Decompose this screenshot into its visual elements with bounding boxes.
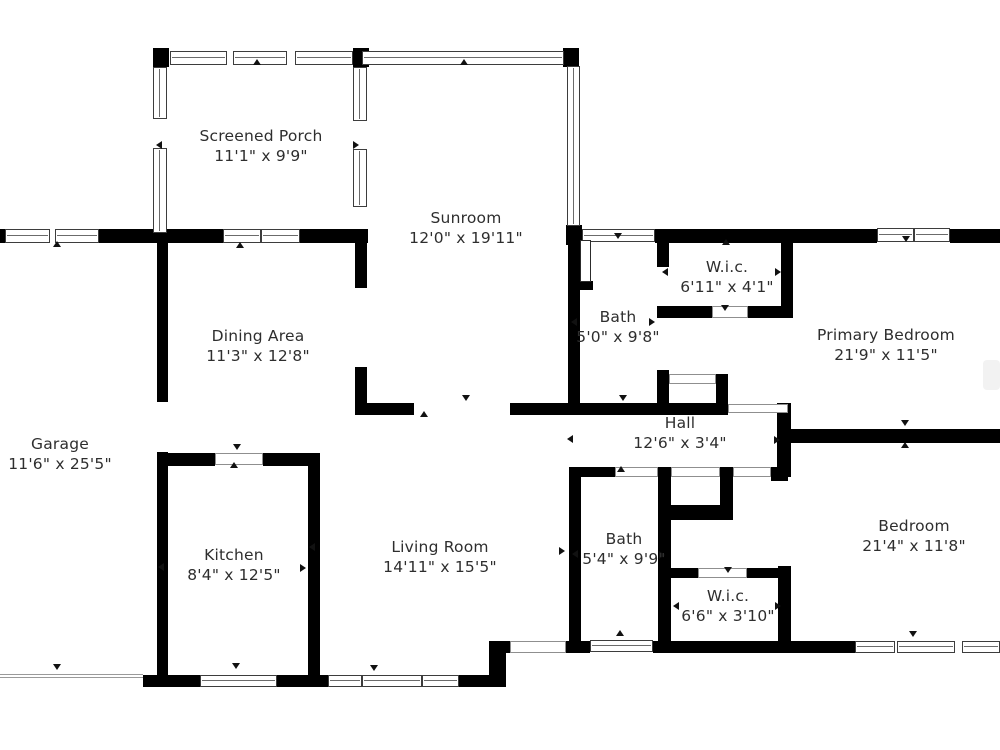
dimension-marker: [300, 564, 306, 572]
dimension-marker: [232, 663, 240, 669]
window-pane-line: [159, 150, 160, 231]
window-pane-line: [172, 57, 225, 58]
window-symbol: [328, 675, 362, 687]
wall-segment: [157, 240, 168, 402]
dimension-marker: [774, 436, 780, 444]
floor-plan: Screened Porch 11'1" x 9'9" Sunroom 12'0…: [0, 0, 1000, 750]
window-pane-line: [364, 57, 562, 58]
window-pane-line: [857, 646, 893, 647]
wall-segment: [143, 675, 200, 687]
room-dims: 12'0" x 19'11": [409, 228, 523, 248]
room-name: Primary Bedroom: [817, 325, 955, 345]
room-dims: 5'0" x 9'8": [576, 327, 659, 347]
window-symbol: [362, 675, 422, 687]
dimension-marker: [901, 442, 909, 448]
dimension-marker: [370, 665, 378, 671]
window-symbol: [200, 675, 277, 687]
window-pane-line: [297, 57, 351, 58]
window-symbol: [153, 67, 167, 119]
room-dims: 5'4" x 9'9": [582, 549, 665, 569]
room-dims: 6'6" x 3'10": [681, 606, 775, 626]
dimension-marker: [775, 602, 781, 610]
door-opening: [712, 306, 748, 318]
room-name: Hall: [633, 413, 727, 433]
door-opening: [355, 288, 367, 367]
window-symbol: [567, 66, 580, 226]
wall-segment: [566, 641, 590, 653]
room-name: Bath: [576, 307, 659, 327]
dimension-marker: [572, 550, 578, 558]
wall-segment: [653, 641, 855, 653]
room-dims: 11'3" x 12'8": [206, 346, 310, 366]
dimension-marker: [722, 239, 730, 245]
wall-segment: [308, 453, 320, 687]
dimension-marker: [156, 141, 162, 149]
dimension-marker: [230, 462, 238, 468]
dimension-marker: [53, 241, 61, 247]
door-opening: [733, 467, 771, 477]
room-dims: 8'4" x 12'5": [187, 565, 281, 585]
window-pane-line: [424, 680, 457, 681]
dimension-marker: [236, 242, 244, 248]
window-symbol: [353, 67, 367, 121]
window-pane-line: [330, 680, 360, 681]
window-pane-line: [573, 68, 574, 224]
room-name: W.i.c.: [680, 257, 774, 277]
wall-segment: [568, 281, 593, 290]
window-pane-line: [899, 646, 953, 647]
window-symbol: [295, 51, 353, 65]
wall-segment: [716, 374, 728, 408]
window-symbol: [55, 229, 99, 243]
window-pane-line: [7, 235, 48, 236]
wall-segment: [671, 505, 733, 520]
door-opening: [414, 404, 510, 414]
room-dims: 21'9" x 11'5": [817, 345, 955, 365]
window-pane-line: [235, 57, 285, 58]
wall-segment: [300, 229, 368, 243]
dimension-marker: [462, 395, 470, 401]
window-symbol: [962, 641, 1000, 653]
window-pane-line: [263, 235, 298, 236]
wall-segment: [277, 675, 328, 687]
room-name: Sunroom: [409, 208, 523, 228]
wall-segment: [157, 453, 215, 466]
dimension-marker: [662, 268, 668, 276]
dimension-marker: [420, 411, 428, 417]
dimension-marker: [614, 233, 622, 239]
wall-segment: [569, 467, 581, 652]
window-symbol: [855, 641, 895, 653]
door-opening: [510, 641, 566, 653]
window-pane-line: [964, 646, 998, 647]
dimension-marker: [902, 236, 910, 242]
dimension-marker: [673, 602, 679, 610]
dimension-marker: [158, 563, 164, 571]
room-label-living-room: Living Room 14'11" x 15'5": [383, 537, 497, 577]
room-name: Bath: [582, 529, 665, 549]
wall-segment: [720, 467, 733, 507]
wall-segment: [355, 403, 414, 415]
room-label-screened-porch: Screened Porch 11'1" x 9'9": [199, 126, 322, 166]
window-symbol: [5, 229, 50, 243]
dimension-marker: [775, 268, 781, 276]
dimension-marker: [253, 59, 261, 65]
wall-segment: [655, 229, 877, 243]
window-pane-line: [359, 151, 360, 205]
dimension-marker: [53, 664, 61, 670]
room-dims: 11'1" x 9'9": [199, 146, 322, 166]
wall-segment: [657, 243, 669, 267]
window-symbol: [261, 229, 300, 243]
room-label-bath-lower: Bath 5'4" x 9'9": [582, 529, 665, 569]
window-pane-line: [159, 69, 160, 117]
dimension-marker: [353, 141, 359, 149]
door-opening: [698, 568, 747, 578]
room-dims: 21'4" x 11'8": [862, 536, 966, 556]
window-pane-line: [916, 234, 948, 235]
room-label-primary-bedroom: Primary Bedroom 21'9" x 11'5": [817, 325, 955, 365]
room-label-wic-upper: W.i.c. 6'11" x 4'1": [680, 257, 774, 297]
window-symbol: [422, 675, 459, 687]
window-pane-line: [57, 235, 97, 236]
dimension-marker: [619, 395, 627, 401]
room-dims: 12'6" x 3'4": [633, 433, 727, 453]
dimension-marker: [901, 420, 909, 426]
wall-segment: [657, 306, 712, 318]
room-name: W.i.c.: [681, 586, 775, 606]
dimension-marker: [617, 466, 625, 472]
window-pane-line: [359, 69, 360, 119]
dimension-marker: [559, 547, 565, 555]
wall-segment: [771, 467, 788, 481]
window-pane-line: [592, 645, 651, 646]
window-symbol: [590, 640, 653, 652]
room-name: Kitchen: [187, 545, 281, 565]
room-label-hall: Hall 12'6" x 3'4": [633, 413, 727, 453]
dimension-marker: [460, 59, 468, 65]
dimension-marker: [616, 630, 624, 636]
room-dims: 6'11" x 4'1": [680, 277, 774, 297]
dimension-marker: [721, 305, 729, 311]
window-pane-line: [202, 680, 275, 681]
wall-segment: [950, 229, 1000, 243]
wall-segment: [671, 568, 698, 578]
window-pane-line: [225, 235, 259, 236]
door-leaf: [580, 240, 591, 282]
dimension-marker: [724, 567, 732, 573]
room-label-kitchen: Kitchen 8'4" x 12'5": [187, 545, 281, 585]
room-label-garage: Garage 11'6" x 25'5": [8, 434, 112, 474]
door-opening: [669, 374, 716, 384]
door-opening: [157, 402, 168, 452]
room-label-wic-lower: W.i.c. 6'6" x 3'10": [681, 586, 775, 626]
window-pane-line: [364, 680, 420, 681]
window-symbol: [897, 641, 955, 653]
window-symbol: [914, 228, 950, 242]
dimension-marker: [567, 435, 573, 443]
window-symbol: [170, 51, 227, 65]
dimension-marker: [309, 543, 315, 551]
watermark-fragment: [983, 360, 1000, 390]
room-name: Dining Area: [206, 326, 310, 346]
window-symbol: [153, 148, 167, 233]
room-dims: 14'11" x 15'5": [383, 557, 497, 577]
wall-segment: [563, 48, 579, 67]
room-label-dining-area: Dining Area 11'3" x 12'8": [206, 326, 310, 366]
wall-segment: [458, 675, 489, 687]
room-label-bedroom: Bedroom 21'4" x 11'8": [862, 516, 966, 556]
wall-segment: [153, 48, 169, 67]
door-opening: [671, 467, 720, 477]
room-name: Living Room: [383, 537, 497, 557]
room-dims: 11'6" x 25'5": [8, 454, 112, 474]
window-symbol: [353, 149, 367, 207]
door-opening: [728, 404, 788, 413]
room-label-bath-upper: Bath 5'0" x 9'8": [576, 307, 659, 347]
door-opening: [215, 453, 263, 465]
garage-door-line: [0, 674, 143, 678]
wall-segment: [355, 243, 367, 288]
dimension-marker: [909, 631, 917, 637]
room-name: Garage: [8, 434, 112, 454]
wall-segment: [781, 231, 793, 318]
wall-segment: [788, 429, 1000, 443]
dimension-marker: [233, 444, 241, 450]
wall-segment: [657, 370, 669, 408]
room-label-sunroom: Sunroom 12'0" x 19'11": [409, 208, 523, 248]
room-name: Screened Porch: [199, 126, 322, 146]
window-pane-line: [879, 234, 912, 235]
window-symbol: [223, 229, 261, 243]
room-name: Bedroom: [862, 516, 966, 536]
wall-segment: [489, 641, 506, 687]
